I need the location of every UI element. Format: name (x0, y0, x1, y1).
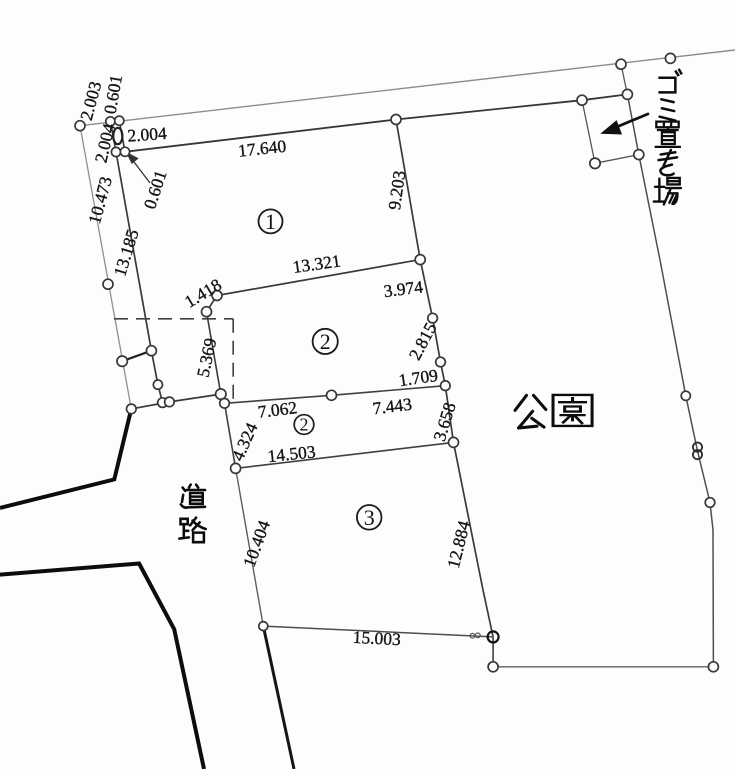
svg-text:2: 2 (300, 415, 309, 435)
svg-text:2.004: 2.004 (127, 123, 168, 146)
svg-text:1: 1 (265, 209, 276, 234)
svg-text:3: 3 (364, 505, 375, 530)
svg-text:15.003: 15.003 (352, 627, 401, 650)
svg-text:2: 2 (320, 329, 331, 354)
